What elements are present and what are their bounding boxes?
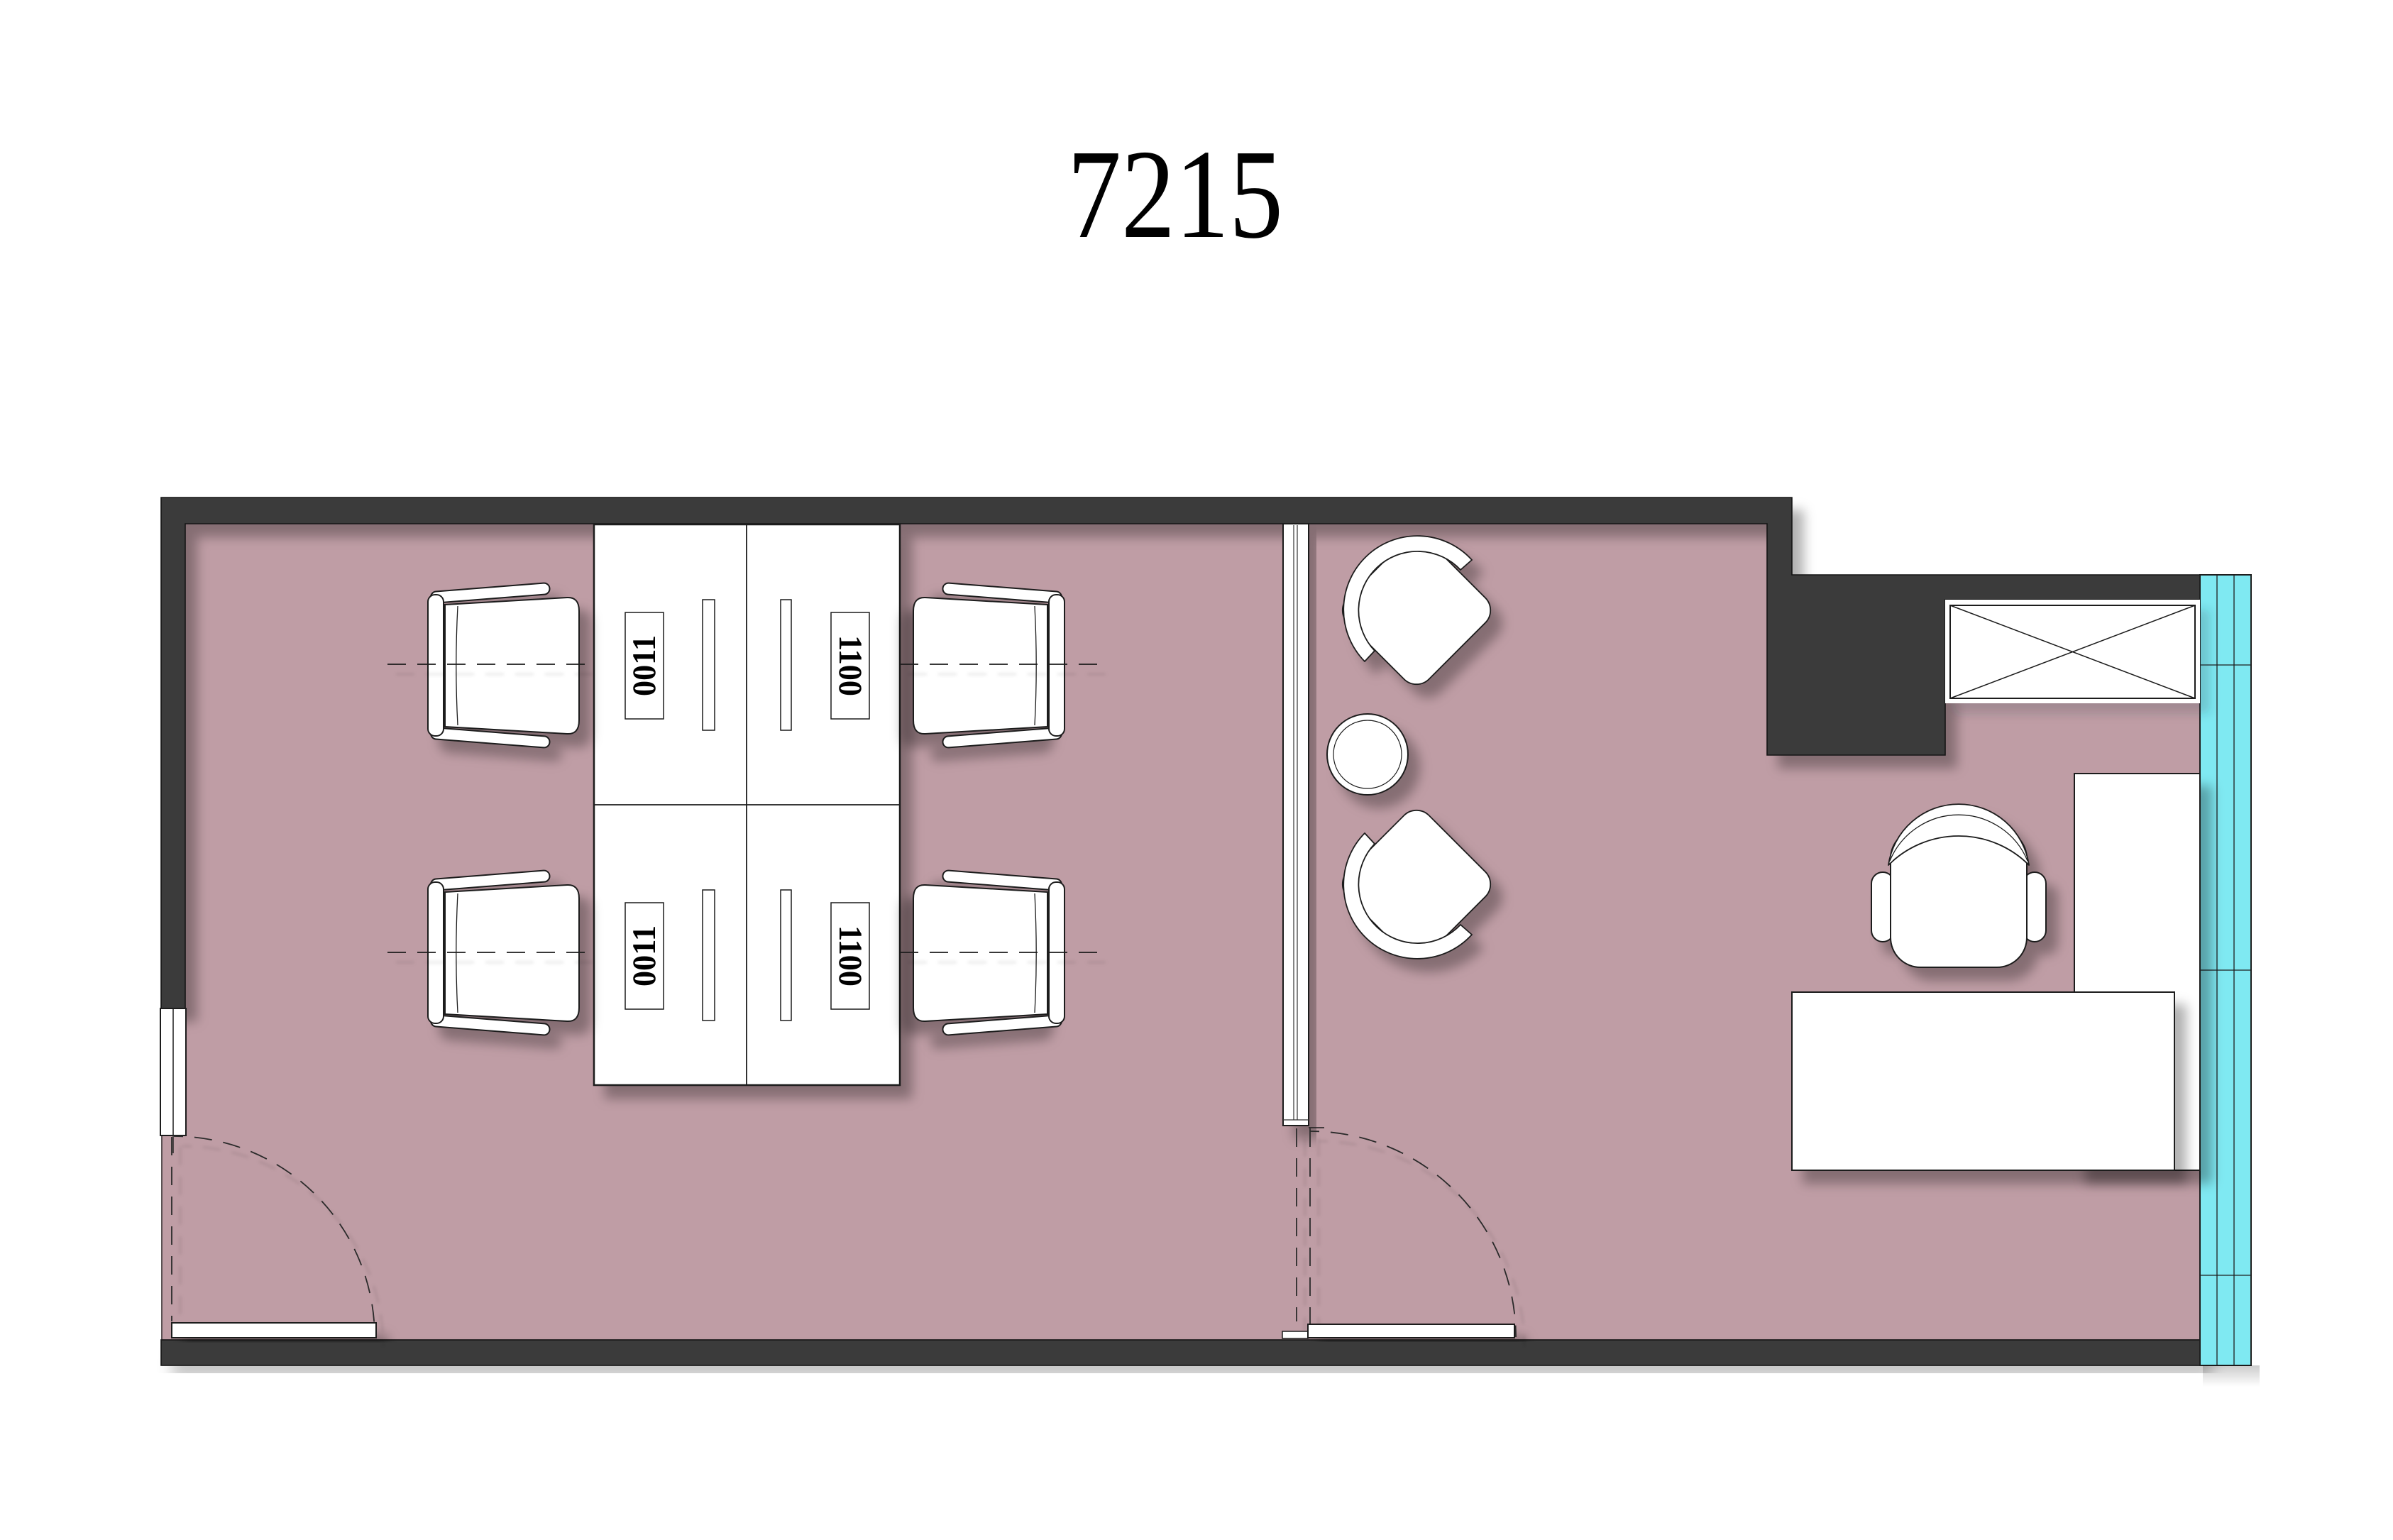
svg-text:1100: 1100 [832, 925, 869, 986]
svg-text:0011: 0011 [626, 925, 663, 986]
svg-text:1100: 1100 [832, 635, 869, 696]
svg-text:0011: 0011 [626, 635, 663, 696]
svg-text:7215: 7215 [1067, 123, 1283, 265]
